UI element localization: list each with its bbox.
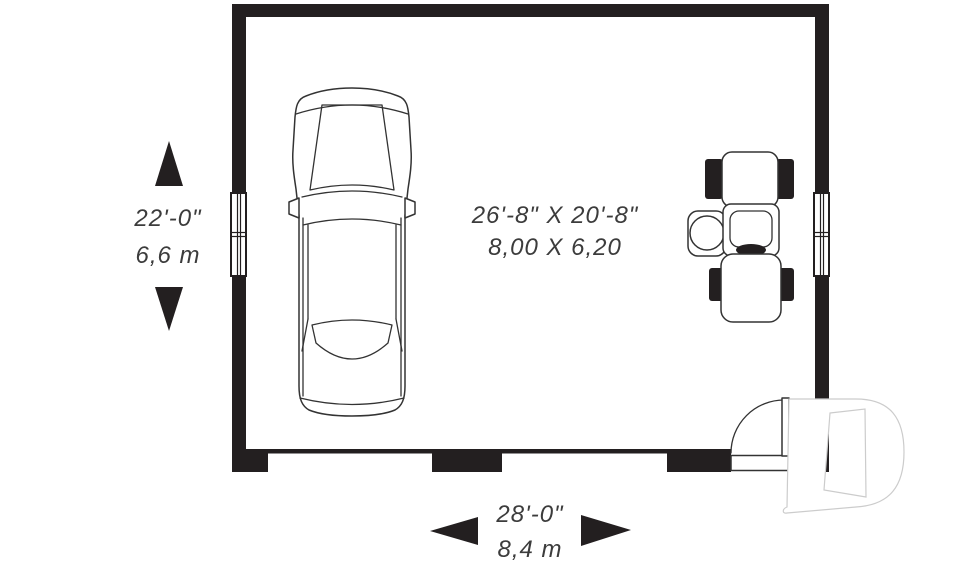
floor-plan-page: { "room_label": { "imperial": "26'-8\" X… xyxy=(0,0,960,569)
floor-plan-canvas: 26'-8" X 20'-8" 8,00 X 6,20 22'-0" 6,6 m… xyxy=(0,0,960,569)
room-size-imperial: 26'-8" X 20'-8" xyxy=(430,200,680,232)
room-size-label: 26'-8" X 20'-8" 8,00 X 6,20 xyxy=(430,200,680,264)
room-size-metric: 8,00 X 6,20 xyxy=(430,232,680,264)
garage-door-opening-left-icon xyxy=(268,449,432,454)
dimension-depth-imperial: 22'-0" xyxy=(114,200,222,237)
letter-d-watermark-logo xyxy=(783,399,904,513)
lawn-tractor-icon xyxy=(688,152,794,322)
dimension-depth-label: 22'-0" 6,6 m xyxy=(114,200,222,274)
dimension-depth-metric: 6,6 m xyxy=(114,237,222,274)
car-top-view-icon xyxy=(289,88,415,416)
dimension-width-imperial: 28'-0" xyxy=(468,497,592,532)
dim-arrow-down-icon xyxy=(155,287,183,331)
window-left-icon xyxy=(231,193,246,276)
dimension-width-metric: 8,4 m xyxy=(468,532,592,567)
window-right-icon xyxy=(814,193,829,276)
garage-door-opening-right-icon xyxy=(502,449,667,454)
floor-plan-drawing xyxy=(0,0,960,569)
dim-arrow-up-icon xyxy=(155,141,183,186)
dimension-width-label: 28'-0" 8,4 m xyxy=(468,497,592,567)
